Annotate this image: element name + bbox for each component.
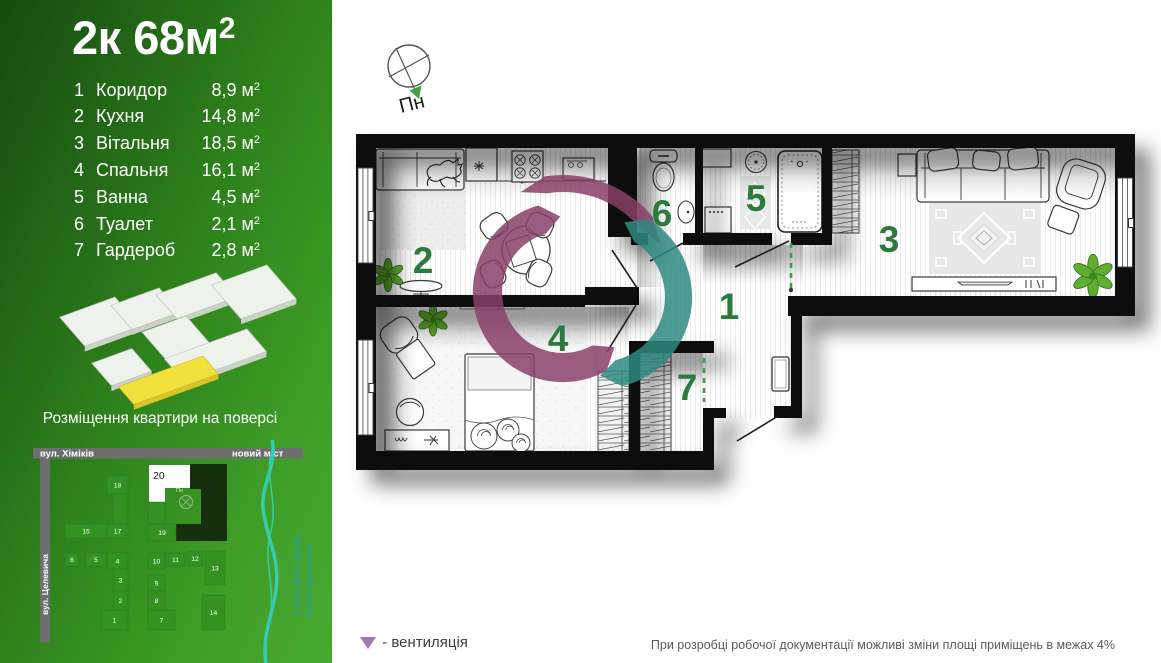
svg-text:7: 7 [677, 367, 698, 408]
svg-text:6: 6 [652, 193, 673, 234]
svg-text:4: 4 [548, 318, 569, 359]
svg-text:2: 2 [413, 240, 434, 281]
svg-text:Пн: Пн [397, 90, 427, 117]
svg-text:1: 1 [719, 286, 740, 327]
svg-text:5: 5 [746, 178, 767, 219]
svg-text:3: 3 [879, 219, 900, 260]
